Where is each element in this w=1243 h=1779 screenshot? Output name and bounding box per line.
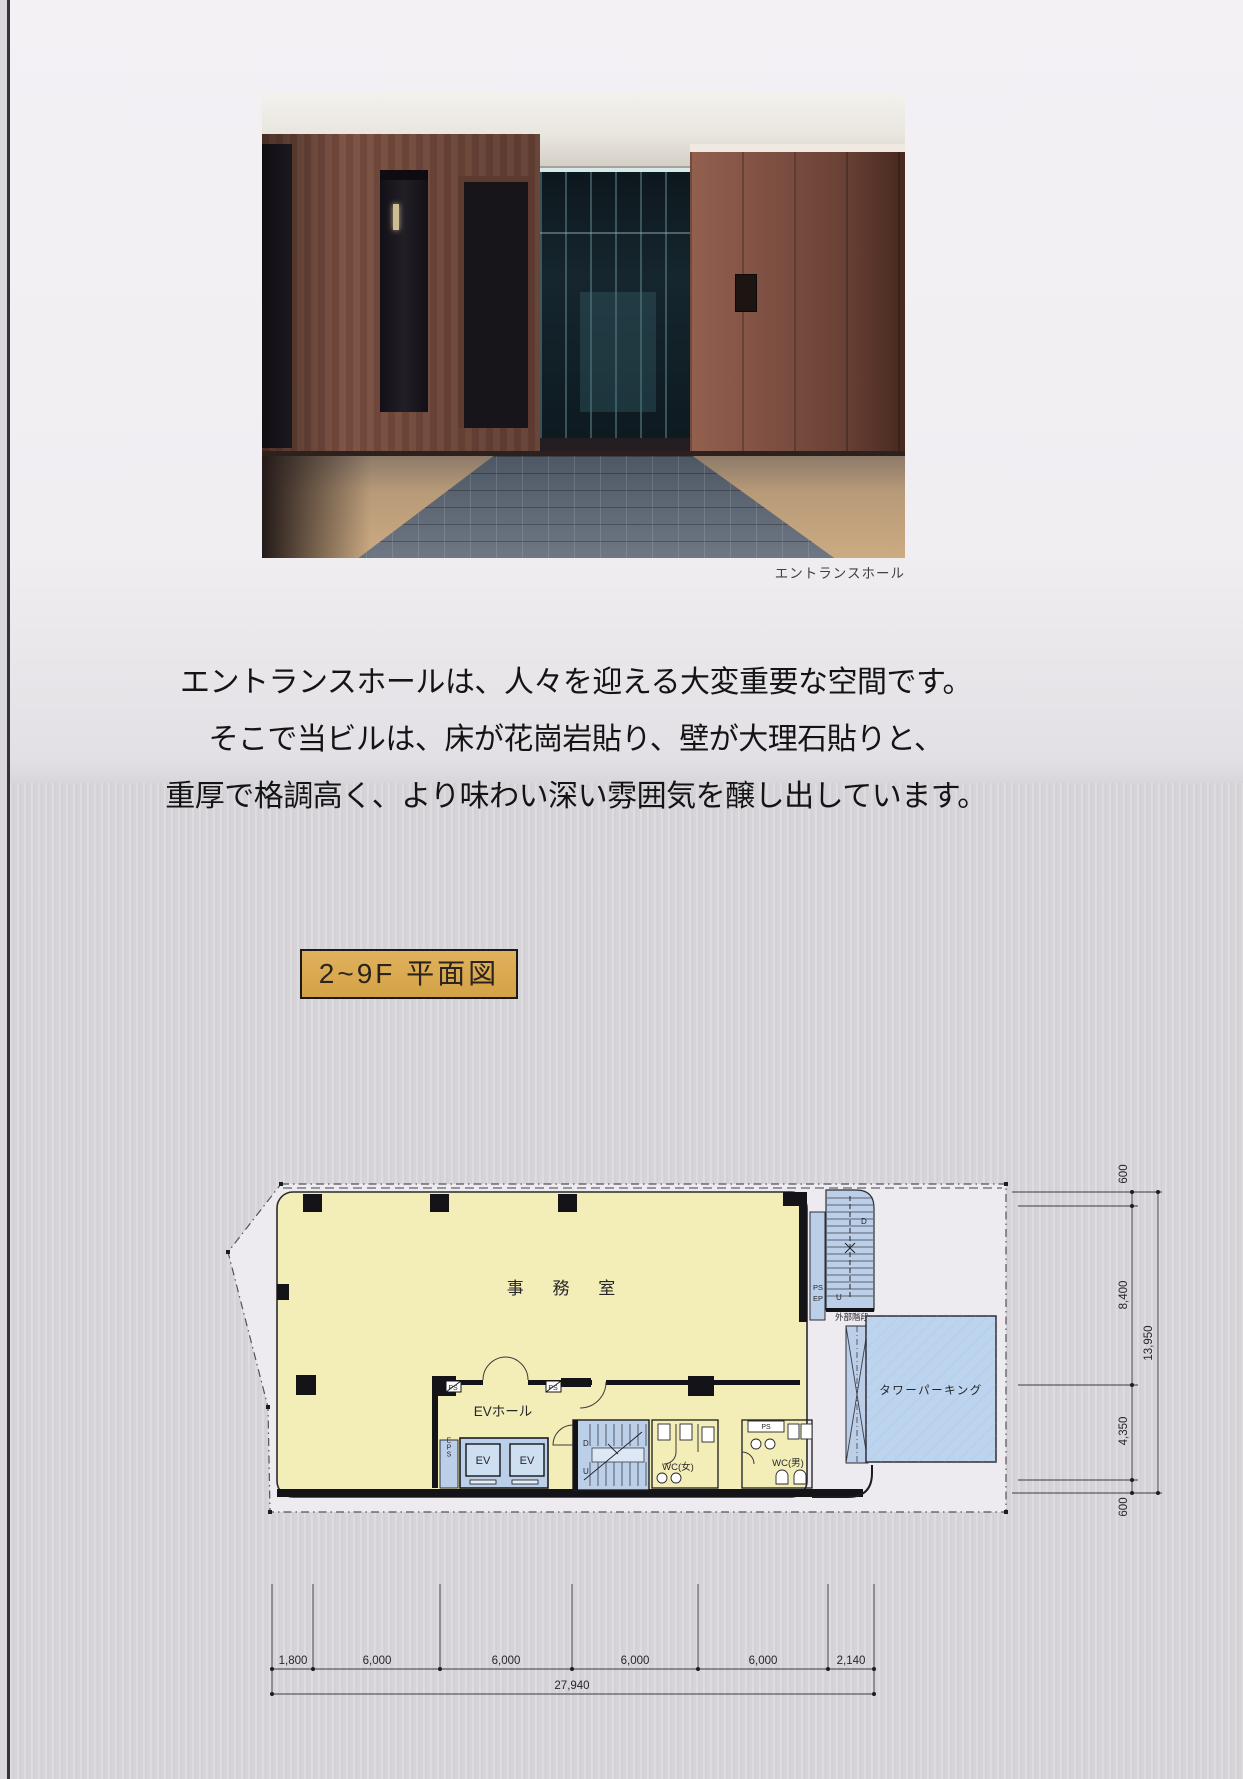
tower-parking-label: タワーパーキング (879, 1383, 983, 1397)
dim-right-600-top: 600 (1118, 1164, 1130, 1183)
photo-ceiling-light (540, 168, 692, 172)
dim-bottom-total-27940: 27,940 (554, 1680, 589, 1692)
office-label: 事 務 室 (507, 1279, 627, 1298)
intro-line-2: そこで当ビルは、床が花崗岩貼り、壁が大理石貼りと、 (0, 711, 1152, 768)
double-door-opening (483, 1378, 528, 1387)
wc-women-label: WC(女) (662, 1461, 694, 1473)
ps-label-wc-men: PS (761, 1424, 771, 1431)
ps-ep-shaft (810, 1212, 825, 1320)
ev-hall-label: EVホール (474, 1404, 533, 1419)
intro-line-1: エントランスホールは、人々を迎える大変重要な空間です。 (0, 654, 1152, 711)
photo-elevator-indicator (393, 204, 399, 230)
intro-line-3: 重厚で格調高く、より味わい深い雰囲気を醸し出しています。 (0, 768, 1152, 825)
photo-floor-shadow (262, 456, 371, 558)
photo-elevator-door-right (458, 176, 534, 428)
parking-link-brace (846, 1326, 868, 1463)
elevator-sill-right (512, 1480, 538, 1484)
photo-call-button-panel (735, 274, 757, 312)
photo-glass-transom (540, 232, 692, 234)
external-stair (826, 1190, 874, 1312)
floor-plan-title-badge: 2~9F 平面図 (300, 949, 518, 999)
entrance-hall-photo (262, 92, 905, 558)
dim-right-4350: 4,350 (1118, 1417, 1130, 1446)
dim-bottom-1800: 1,800 (279, 1655, 308, 1667)
shaft-ps-label: PS (813, 1283, 823, 1292)
dim-bottom-6000-4: 6,000 (749, 1655, 778, 1667)
ps-label-1: PS (448, 1385, 458, 1392)
eps-label: EPS (446, 1438, 453, 1459)
dim-bottom-6000-1: 6,000 (363, 1655, 392, 1667)
inner-stair-down: D (583, 1439, 589, 1448)
dim-right-8400: 8,400 (1118, 1281, 1130, 1310)
photo-caption: エントランスホール (262, 562, 905, 582)
outer-stair-label: 外部階段 (835, 1312, 870, 1322)
photo-right-marble-wall (690, 152, 905, 454)
photo-elevator-door-left (262, 144, 292, 448)
ev-right-label: EV (520, 1455, 535, 1467)
internal-stair (573, 1420, 649, 1490)
right-dimension-lines (1012, 1192, 1162, 1493)
photo-elevator-door-center (380, 180, 428, 412)
stair-door-opening (592, 1378, 606, 1387)
elevator-sill-left (470, 1480, 496, 1484)
outer-stair-up: U (836, 1293, 842, 1302)
dim-right-total-13950: 13,950 (1143, 1325, 1155, 1360)
dim-right-600-bottom: 600 (1118, 1497, 1130, 1516)
ev-left-label: EV (476, 1455, 491, 1467)
floor-plan-drawing: PS PS EVホール EPS EV EV (0, 1130, 1243, 1730)
dim-bottom-6000-3: 6,000 (621, 1655, 650, 1667)
inner-stair-up: U (583, 1467, 589, 1476)
outer-stair-down: D (861, 1217, 867, 1226)
dim-bottom-2140: 2,140 (837, 1655, 866, 1667)
shaft-ep-label: EP (813, 1294, 823, 1303)
brochure-page: エントランスホール エントランスホールは、人々を迎える大変重要な空間です。 そこ… (0, 0, 1243, 1779)
wc-men-label: WC(男) (772, 1458, 804, 1469)
photo-entrance-glow (580, 292, 656, 412)
photo-right-cornice (690, 144, 905, 152)
ps-label-2: PS (548, 1385, 558, 1392)
intro-paragraph: エントランスホールは、人々を迎える大変重要な空間です。 そこで当ビルは、床が花崗… (0, 654, 1152, 825)
dim-bottom-6000-2: 6,000 (492, 1655, 521, 1667)
